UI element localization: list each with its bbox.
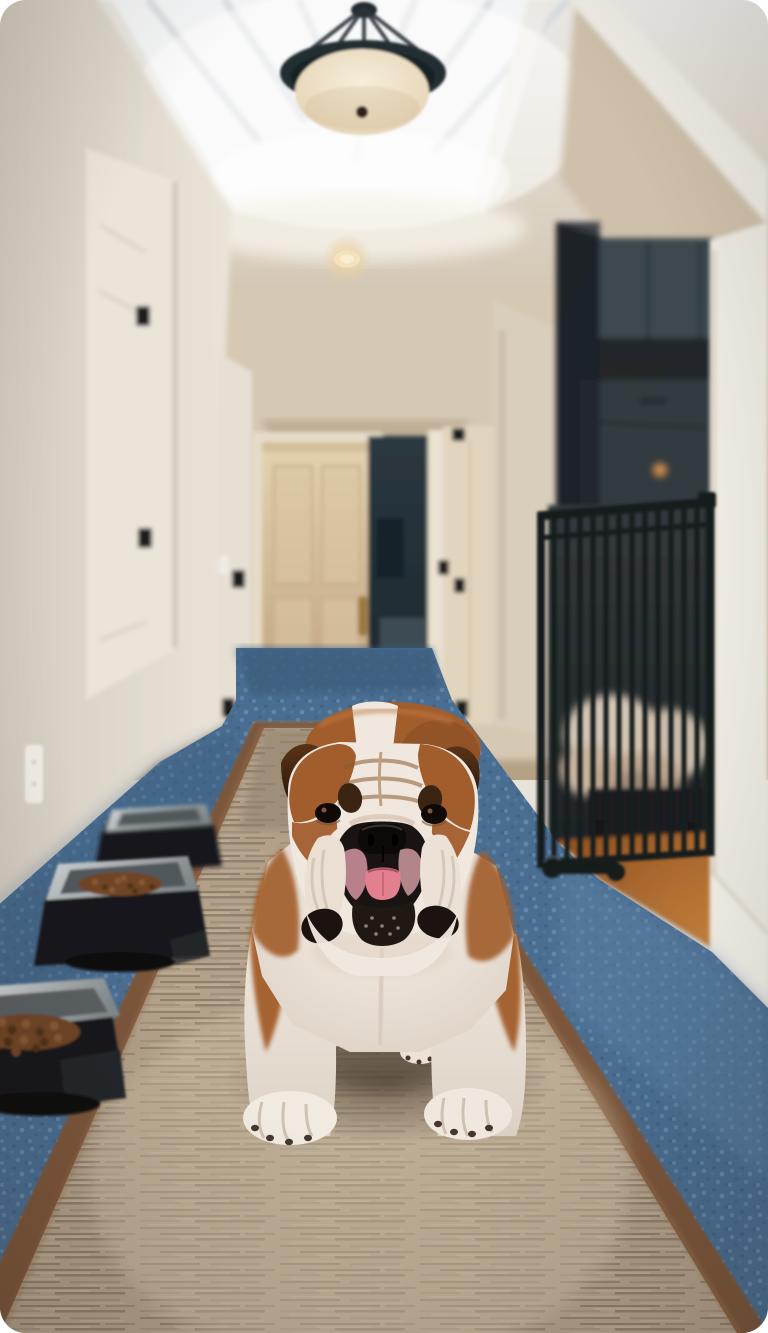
- scene-svg: [0, 0, 768, 1333]
- photo-frame: [0, 0, 768, 1333]
- vignette: [0, 0, 768, 1333]
